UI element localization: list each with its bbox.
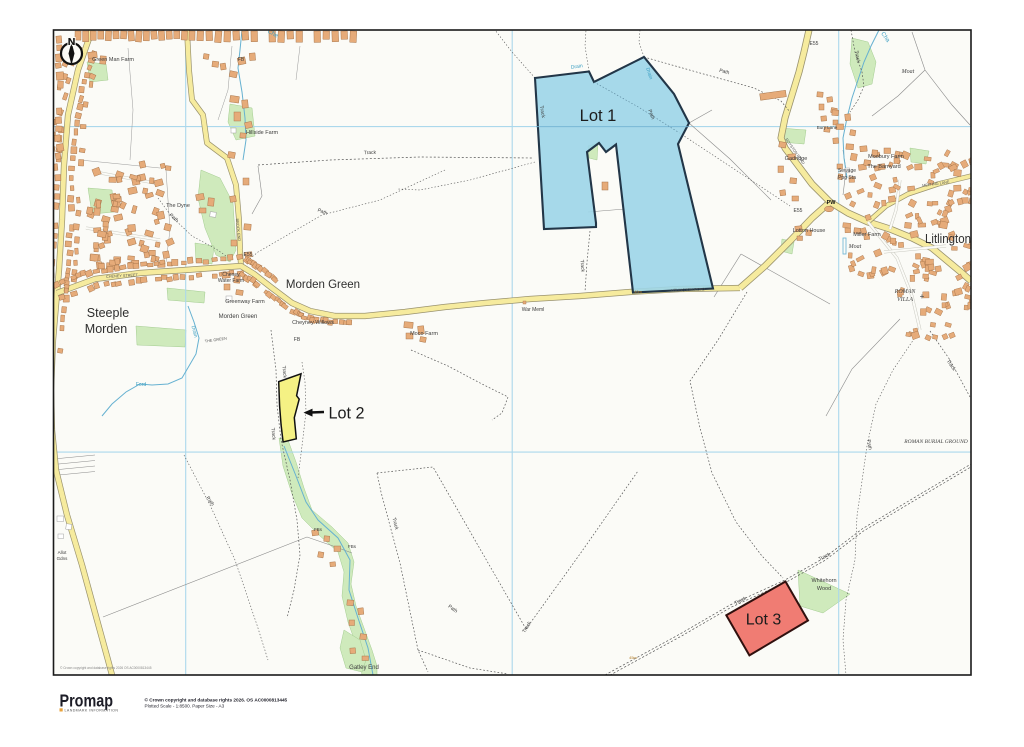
svg-text:Moat: Moat <box>901 69 915 75</box>
svg-text:Miller Farm: Miller Farm <box>853 232 881 238</box>
svg-text:© Crown copyright and database: © Crown copyright and database rights 20… <box>60 666 152 670</box>
svg-text:PW: PW <box>827 200 837 206</box>
svg-text:E55: E55 <box>794 208 803 214</box>
svg-text:+: + <box>920 292 925 301</box>
svg-text:Wood: Wood <box>817 586 831 592</box>
svg-text:N: N <box>68 36 76 48</box>
svg-text:Greenway Farm: Greenway Farm <box>225 299 265 305</box>
svg-text:Hillside Farm: Hillside Farm <box>246 130 279 136</box>
svg-text:VILLA: VILLA <box>897 297 913 303</box>
svg-text:45m: 45m <box>629 655 637 660</box>
svg-text:Track: Track <box>364 150 377 156</box>
svg-text:Sewage: Sewage <box>838 168 856 174</box>
svg-text:Ford: Ford <box>136 382 147 388</box>
svg-text:Morden Green: Morden Green <box>219 314 258 320</box>
svg-text:Cheyney Willows: Cheyney Willows <box>292 320 334 326</box>
svg-text:E55: E55 <box>244 252 253 258</box>
svg-text:Gatley End: Gatley End <box>349 665 379 671</box>
svg-text:LANDMARK INFORMATION: LANDMARK INFORMATION <box>65 709 119 713</box>
svg-text:The Barnyard: The Barnyard <box>867 164 900 170</box>
svg-text:Lot 1: Lot 1 <box>580 107 617 125</box>
svg-text:40m: 40m <box>634 289 642 294</box>
svg-text:Steeple: Steeple <box>87 306 129 320</box>
svg-text:Litlington: Litlington <box>925 232 971 246</box>
svg-text:Promap: Promap <box>60 691 114 711</box>
svg-text:Lot 2: Lot 2 <box>328 405 364 423</box>
svg-text:Track: Track <box>578 260 585 273</box>
svg-text:Morden: Morden <box>85 322 127 336</box>
svg-text:Water Farm: Water Farm <box>218 278 244 284</box>
svg-text:Gdns: Gdns <box>57 556 69 561</box>
svg-text:FBs: FBs <box>348 544 357 549</box>
svg-text:Moobury Farm: Moobury Farm <box>868 154 904 160</box>
svg-text:Morden Green: Morden Green <box>286 279 360 291</box>
svg-text:Moco Farm: Moco Farm <box>410 331 438 337</box>
svg-text:Plotted Scale - 1:8500. Paper: Plotted Scale - 1:8500. Paper Size - A3 <box>145 703 225 708</box>
svg-text:FBs: FBs <box>314 527 323 532</box>
svg-text:ROMAN BURIAL GROUND: ROMAN BURIAL GROUND <box>903 439 967 445</box>
svg-text:ROMAN: ROMAN <box>894 289 917 295</box>
svg-text:Lotton House: Lotton House <box>793 228 826 234</box>
svg-text:E55: E55 <box>810 41 819 47</box>
svg-text:Lot 3: Lot 3 <box>746 612 782 629</box>
svg-text:FB: FB <box>294 337 301 343</box>
svg-text:Moat: Moat <box>848 244 862 250</box>
svg-text:War Meml: War Meml <box>522 307 545 313</box>
svg-text:Whitehorn: Whitehorn <box>811 578 836 584</box>
svg-text:© Crown copyright and database: © Crown copyright and database rights 20… <box>145 697 288 703</box>
svg-text:FB: FB <box>238 57 245 63</box>
svg-text:Allot: Allot <box>58 550 68 555</box>
svg-text:The Dyne: The Dyne <box>166 203 190 209</box>
svg-text:Bury Lane: Bury Lane <box>817 125 838 130</box>
svg-text:Green Man Farm: Green Man Farm <box>92 57 134 63</box>
svg-text:Ppg Sta: Ppg Sta <box>838 175 856 181</box>
